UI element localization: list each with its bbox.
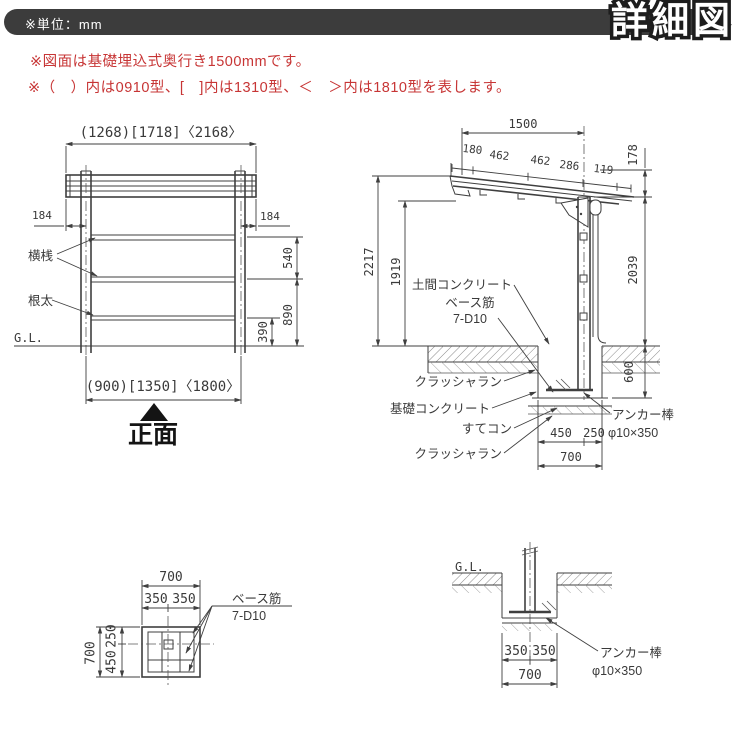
front-caption: 正面 (128, 421, 178, 449)
front-540-text: 540 (281, 247, 295, 269)
side-178-text: 178 (626, 144, 640, 166)
plan-base-bar-spec: 7-D10 (232, 609, 266, 623)
section-anchor (502, 601, 557, 631)
neda-label: 根太 (28, 293, 54, 308)
plan-350b-text: 350 (172, 592, 195, 607)
slope-462b-text: 462 (530, 153, 551, 168)
slope-119-text: 119 (593, 162, 614, 177)
section-gl-label: G.L. (455, 560, 484, 574)
plan-700-left-text: 700 (84, 641, 99, 664)
side-2217-text: 2217 (362, 248, 376, 277)
front-roof (66, 175, 256, 197)
slope-462a-text: 462 (489, 148, 510, 163)
foundation-concrete-label: 基礎コンクリート (390, 402, 490, 416)
plan-base-bar-label: ベース筋 (232, 591, 281, 606)
plan-700-top-text: 700 (159, 570, 182, 585)
base-bar-spec: 7-D10 (453, 312, 487, 326)
side-slope-dimensions: 180 462 462 286 119 (451, 142, 631, 193)
plan-350a-text: 350 (144, 592, 167, 607)
front-184-left: 184 (32, 199, 86, 231)
plan-top-dimensions: 700 350 350 (142, 570, 200, 625)
front-184-right: 184 (241, 199, 290, 231)
section-700-text: 700 (518, 668, 541, 683)
section-view: G.L. (452, 542, 663, 688)
front-bottom-dim-text: (900)[1350]〈1800〉 (86, 379, 240, 395)
section-anchor-rod-spec: φ10×350 (592, 664, 642, 678)
front-view: (1268)[1718]〈2168〉 (14, 125, 304, 449)
crusher-run-upper-label: クラッシャラン (414, 375, 502, 389)
front-top-dimension: (1268)[1718]〈2168〉 (66, 125, 256, 173)
section-dimensions: 350 350 700 (502, 633, 557, 688)
section-anchor-rod-label: アンカー棒 (600, 646, 663, 660)
front-right-dimensions: 540 890 390 (247, 237, 303, 346)
base-bar-label: ベース筋 (445, 295, 494, 310)
roof-bracket (561, 198, 588, 227)
plan-callout: ベース筋 7-D10 (186, 591, 292, 671)
section-callout: アンカー棒 φ10×350 (546, 618, 663, 678)
anchor-rod-spec: φ10×350 (608, 426, 658, 440)
front-184-left-text: 184 (32, 209, 52, 222)
doma-concrete-label: 土間コンクリート (412, 278, 512, 292)
side-view: 1500 180 462 462 286 119 (362, 117, 675, 470)
front-390-text: 390 (256, 321, 270, 343)
front-bottom-dimension: (900)[1350]〈1800〉 (86, 356, 241, 404)
front-890-text: 890 (281, 304, 295, 326)
front-direction-triangle (140, 403, 168, 421)
plan-450-text: 450 (105, 650, 120, 673)
sutekon-label: すてコン (462, 422, 512, 436)
side-1500-text: 1500 (509, 117, 538, 131)
section-350a-text: 350 (504, 644, 527, 659)
slab-right (602, 346, 660, 362)
side-450-text: 450 (550, 426, 572, 440)
front-rails (91, 235, 235, 320)
side-700-text: 700 (560, 450, 582, 464)
side-2039-text: 2039 (626, 256, 640, 285)
technical-drawing: (1268)[1718]〈2168〉 (0, 0, 740, 740)
slope-180-text: 180 (462, 142, 483, 157)
side-250-text: 250 (583, 426, 605, 440)
side-1919-text: 1919 (389, 258, 403, 287)
side-roof (450, 176, 634, 227)
plan-view: 700 350 350 700 250 450 ベース筋 (84, 570, 293, 688)
plan-250-text: 250 (105, 624, 120, 647)
section-350b-text: 350 (532, 644, 555, 659)
crusher-run-lower-label: クラッシャラン (414, 447, 502, 461)
slope-286-text: 286 (559, 158, 580, 173)
front-part-labels: 横桟 根太 (28, 238, 97, 315)
gutter (590, 200, 601, 215)
side-left-dimensions: 2217 1919 (362, 176, 456, 346)
plan-footing (128, 616, 214, 688)
slab-left (428, 346, 538, 362)
plan-left-dimensions: 700 250 450 (84, 624, 141, 677)
anchor-rod-label: アンカー棒 (612, 408, 675, 422)
front-gl-label: G.L. (14, 331, 43, 345)
downpipe-hook (598, 335, 606, 343)
front-184-right-text: 184 (260, 210, 280, 223)
yokosan-label: 横桟 (28, 249, 54, 263)
front-top-dim-text: (1268)[1718]〈2168〉 (80, 125, 243, 141)
